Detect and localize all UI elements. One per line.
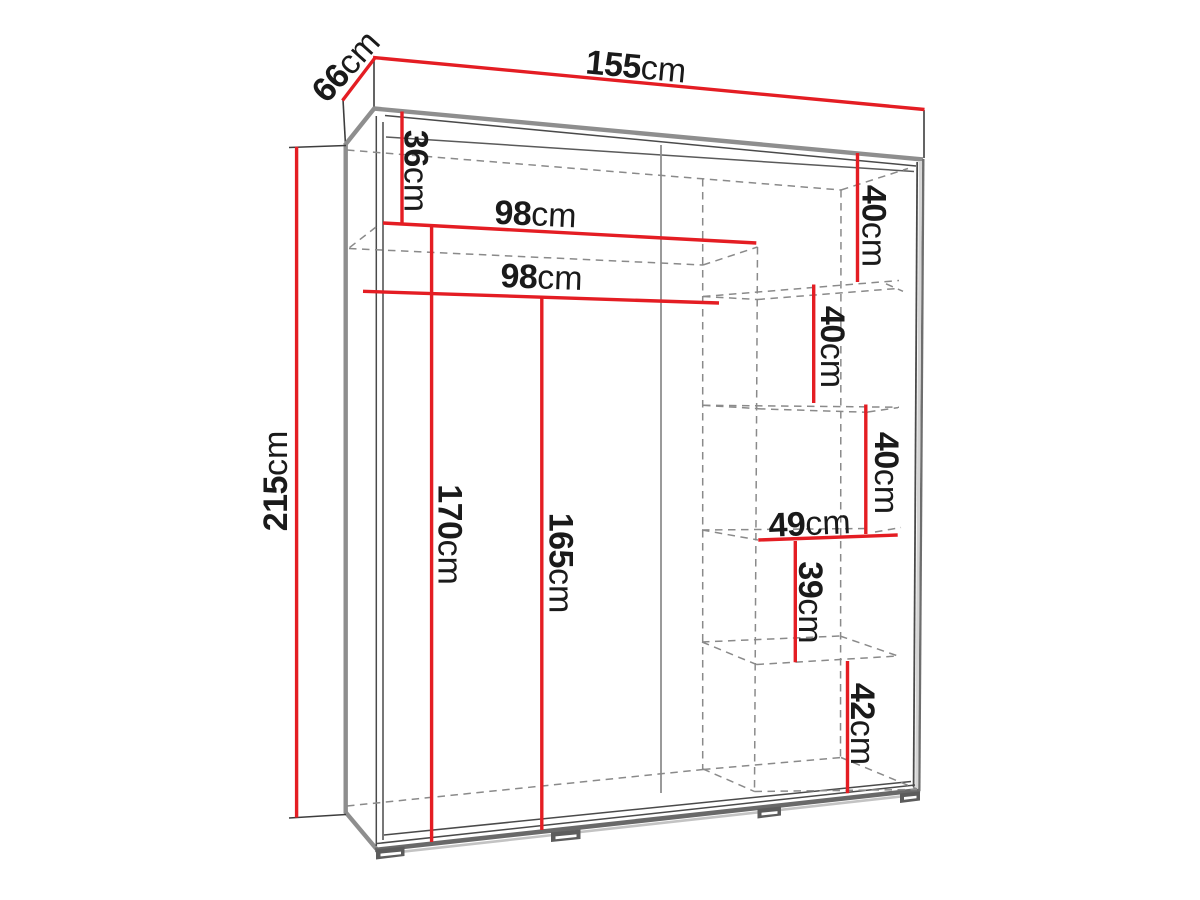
svg-text:42cm: 42cm [843, 683, 881, 765]
svg-text:40cm: 40cm [813, 306, 851, 388]
svg-text:40cm: 40cm [867, 432, 905, 514]
svg-text:98cm: 98cm [494, 194, 578, 236]
svg-text:36cm: 36cm [397, 130, 435, 212]
svg-text:49cm: 49cm [768, 503, 852, 545]
svg-text:98cm: 98cm [500, 257, 583, 298]
svg-text:170cm: 170cm [431, 484, 469, 585]
svg-text:40cm: 40cm [855, 185, 893, 267]
svg-text:165cm: 165cm [542, 513, 580, 614]
svg-text:215cm: 215cm [257, 431, 295, 532]
svg-text:39cm: 39cm [791, 561, 829, 643]
